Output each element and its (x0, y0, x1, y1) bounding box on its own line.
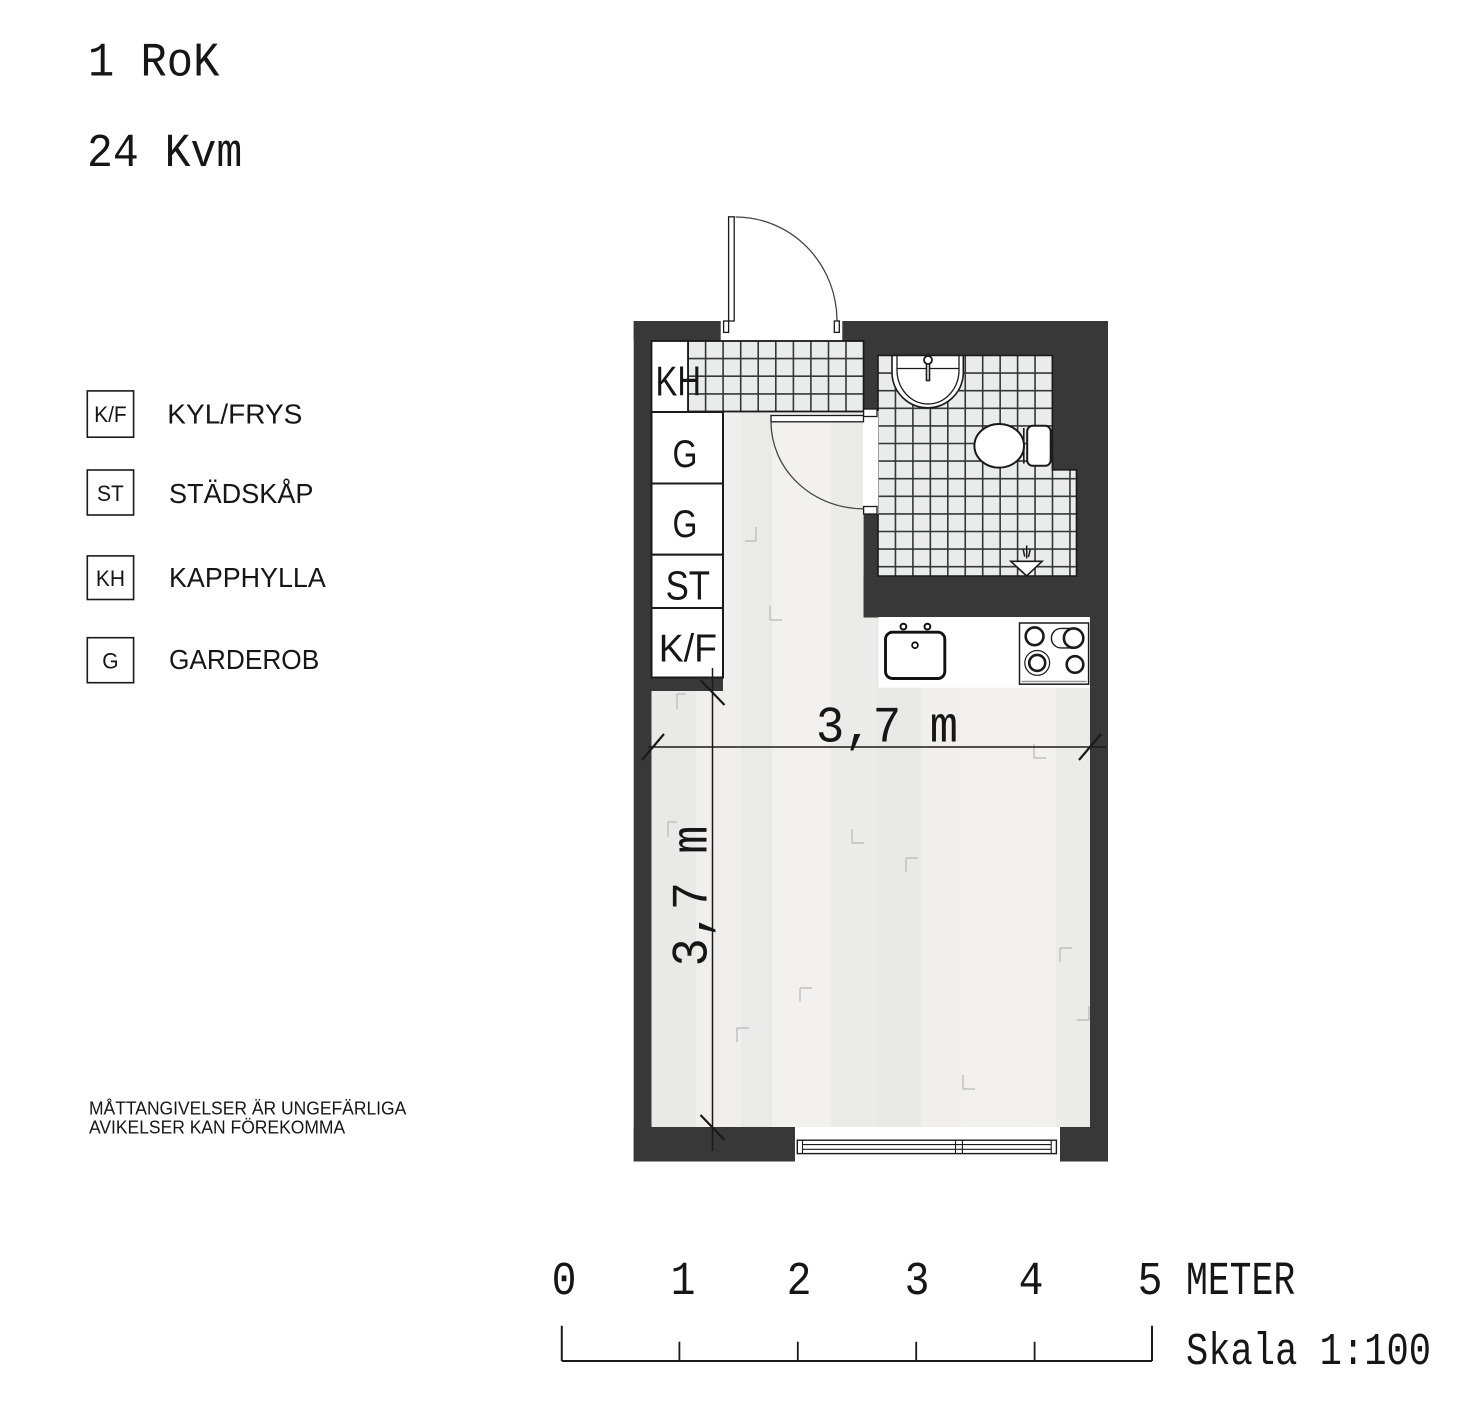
svg-text:2: 2 (787, 1256, 812, 1309)
svg-text:1: 1 (671, 1256, 696, 1309)
svg-text:0: 0 (552, 1256, 577, 1309)
svg-text:AVIKELSER KAN FÖREKOMMA: AVIKELSER KAN FÖREKOMMA (89, 1117, 345, 1138)
svg-text:3,7 m: 3,7 m (664, 826, 722, 967)
svg-text:MÅTTANGIVELSER ÄR UNGEFÄRLIGA: MÅTTANGIVELSER ÄR UNGEFÄRLIGA (89, 1098, 406, 1119)
svg-text:KAPPHYLLA: KAPPHYLLA (169, 562, 327, 593)
svg-text:K/F: K/F (94, 401, 127, 427)
svg-text:4: 4 (1019, 1256, 1044, 1309)
svg-text:K/F: K/F (659, 627, 717, 671)
svg-text:G: G (673, 432, 698, 476)
svg-text:KH: KH (96, 565, 125, 591)
svg-text:KH: KH (656, 358, 701, 405)
svg-text:5: 5 (1138, 1256, 1163, 1309)
svg-text:ST: ST (666, 564, 710, 609)
svg-text:STÄDSKÅP: STÄDSKÅP (169, 478, 313, 509)
svg-text:Skala 1:100: Skala 1:100 (1186, 1328, 1431, 1378)
svg-text:KYL/FRYS: KYL/FRYS (167, 399, 302, 430)
svg-text:3,7 m: 3,7 m (816, 699, 958, 757)
svg-text:G: G (673, 502, 698, 546)
svg-text:3: 3 (905, 1256, 930, 1309)
svg-text:1 RoK: 1 RoK (88, 36, 220, 90)
svg-text:24 Kvm: 24 Kvm (87, 126, 242, 180)
svg-text:GARDEROB: GARDEROB (169, 644, 319, 675)
svg-text:G: G (102, 648, 118, 674)
svg-text:METER: METER (1186, 1255, 1295, 1309)
svg-text:ST: ST (97, 480, 124, 506)
